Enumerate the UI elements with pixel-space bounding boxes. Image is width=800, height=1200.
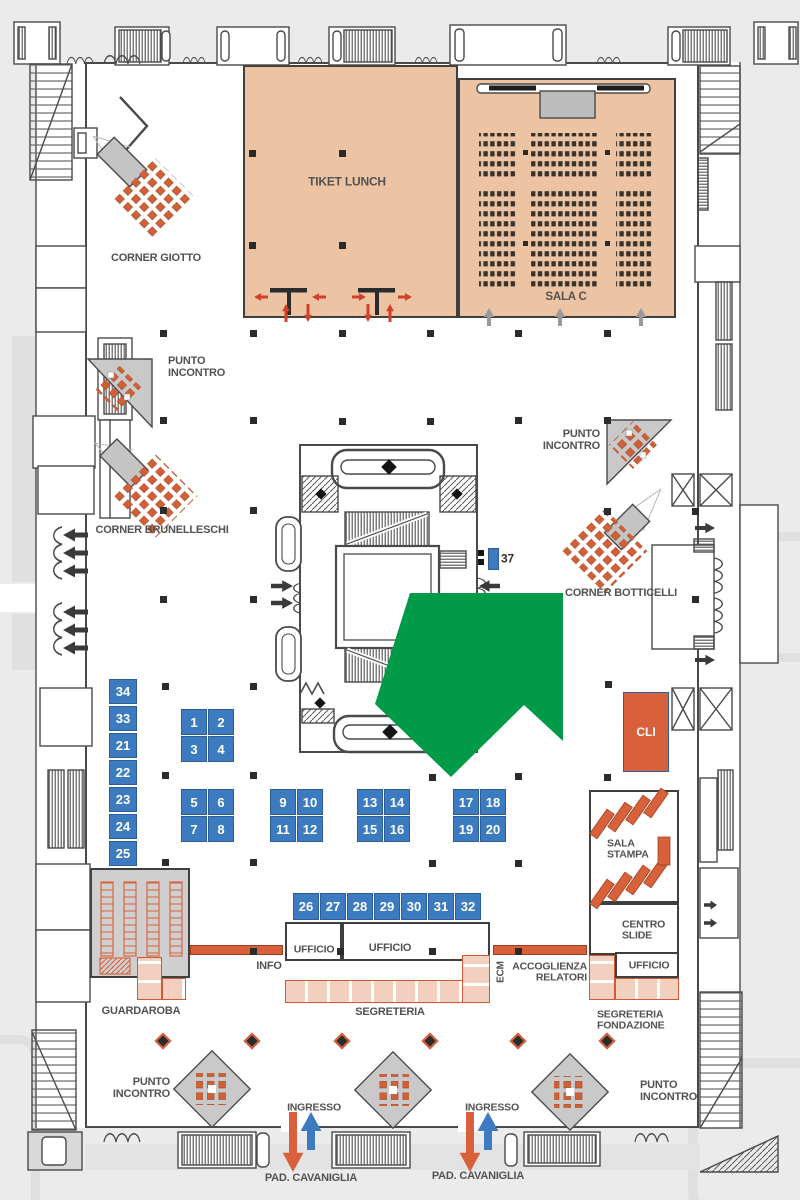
column: [429, 860, 436, 867]
label-punto-incontro-2: PUNTO INCONTRO: [543, 429, 600, 453]
booth-24[interactable]: 24: [109, 814, 137, 839]
label-ecm: ECM: [497, 961, 508, 983]
column: [339, 418, 346, 425]
booth-6[interactable]: 6: [208, 789, 234, 815]
label-punto-incontro-3: PUNTO INCONTRO: [113, 1077, 170, 1101]
booth-9[interactable]: 9: [270, 789, 296, 815]
booth-11[interactable]: 11: [270, 816, 296, 842]
booth-17[interactable]: 17: [453, 789, 479, 815]
booth-2[interactable]: 2: [208, 709, 234, 735]
column: [250, 859, 257, 866]
label-ufficio-small: UFFICIO: [294, 944, 335, 955]
booth-29[interactable]: 29: [374, 893, 400, 920]
label-segreteria-fondazione: SEGRETERIA FONDAZIONE: [597, 1010, 664, 1033]
column: [250, 683, 257, 690]
counter-ecm-desk: [493, 945, 587, 955]
column: [160, 507, 167, 514]
column: [429, 774, 436, 781]
column: [339, 330, 346, 337]
tower-top-right: [754, 22, 798, 64]
booth-13[interactable]: 13: [357, 789, 383, 815]
room-tiket-lunch: [243, 65, 458, 318]
column: [250, 772, 257, 779]
booth-34[interactable]: 34: [109, 679, 137, 704]
label-corner-giotto: CORNER GIOTTO: [111, 253, 201, 265]
label-pad-cavaniglia-1: PAD. CAVANIGLIA: [265, 1173, 357, 1185]
column: [604, 417, 611, 424]
counter-fondazione-side: [589, 955, 615, 1000]
booth-7[interactable]: 7: [181, 816, 207, 842]
column: [604, 508, 611, 515]
column: [427, 330, 434, 337]
column: [692, 508, 699, 515]
booth-23[interactable]: 23: [109, 787, 137, 812]
column: [250, 507, 257, 514]
column: [515, 860, 522, 867]
column: [604, 774, 611, 781]
column: [337, 948, 344, 955]
label-punto-incontro-1: PUNTO INCONTRO: [168, 356, 225, 380]
booth-19[interactable]: 19: [453, 816, 479, 842]
column: [605, 681, 612, 688]
booth-20[interactable]: 20: [480, 816, 506, 842]
column: [515, 330, 522, 337]
booth-33[interactable]: 33: [109, 706, 137, 731]
column: [162, 859, 169, 866]
counter-guardaroba-b: [162, 978, 186, 1000]
column: [249, 150, 256, 157]
booth-30[interactable]: 30: [401, 893, 427, 920]
booth-1[interactable]: 1: [181, 709, 207, 735]
label-ufficio-right: UFFICIO: [629, 960, 670, 971]
left-exit-gap: [0, 584, 52, 612]
road-right: [752, 532, 800, 662]
label-ingresso-2: INGRESSO: [465, 1102, 519, 1113]
column: [162, 683, 169, 690]
booth-37[interactable]: [488, 548, 499, 570]
arrow-room-right-2: [704, 919, 717, 928]
room-sala-c: [458, 78, 676, 318]
label-tiket-lunch: TIKET LUNCH: [308, 176, 386, 189]
column: [160, 330, 167, 337]
booth-26[interactable]: 26: [293, 893, 319, 920]
booth-14[interactable]: 14: [384, 789, 410, 815]
stairs-top-left: [30, 64, 72, 180]
label-sala-stampa: SALA STAMPA: [607, 839, 649, 862]
label-segreteria: SEGRETERIA: [355, 1007, 425, 1019]
counter-accoglienza: [462, 955, 490, 1003]
booth-5[interactable]: 5: [181, 789, 207, 815]
column: [249, 242, 256, 249]
booth-CLI[interactable]: CLI: [623, 692, 669, 772]
arrow-room-right-1: [704, 901, 717, 910]
column: [515, 417, 522, 424]
column: [427, 418, 434, 425]
left-outer-band-2: [12, 614, 42, 670]
booth-31[interactable]: 31: [428, 893, 454, 920]
column: [604, 330, 611, 337]
sidewalk-bottom: [85, 1144, 700, 1170]
column: [429, 948, 436, 955]
vent-grilles-top: [115, 25, 730, 65]
road-bottom-right: [688, 1058, 800, 1200]
column: [160, 417, 167, 424]
label-ufficio-large: UFFICIO: [369, 943, 412, 955]
booth-32[interactable]: 32: [455, 893, 481, 920]
left-outer-band-1: [12, 336, 42, 582]
booth-22[interactable]: 22: [109, 760, 137, 785]
counter-guardaroba-a: [137, 957, 162, 1000]
label-ingresso-1: INGRESSO: [287, 1102, 341, 1113]
counter-info-desk: [190, 945, 283, 955]
column: [162, 772, 169, 779]
column: [250, 596, 257, 603]
booth-21[interactable]: 21: [109, 733, 137, 758]
column: [339, 150, 346, 157]
column: [250, 417, 257, 424]
booth-18[interactable]: 18: [480, 789, 506, 815]
label-accoglienza-relatori: ACCOGLIENZA RELATORI: [512, 962, 587, 985]
booth-4[interactable]: 4: [208, 736, 234, 762]
label-sala-c: SALA C: [545, 291, 586, 303]
booth-16[interactable]: 16: [384, 816, 410, 842]
label-info: INFO: [256, 961, 281, 973]
tower-top-left: [14, 22, 60, 64]
column: [250, 330, 257, 337]
column: [692, 596, 699, 603]
column: [160, 596, 167, 603]
booth-25[interactable]: 25: [109, 841, 137, 866]
booth-3[interactable]: 3: [181, 736, 207, 762]
label-pad-cavaniglia-2: PAD. CAVANIGLIA: [432, 1171, 524, 1183]
column: [515, 773, 522, 780]
label-booth-37-number: 37: [501, 553, 514, 566]
stairs-top-right: [700, 66, 740, 154]
venue-floorplan: 1234567891011121314151617181920343321222…: [0, 0, 800, 1200]
label-centro-slide: CENTRO SLIDE: [622, 920, 665, 943]
booth-15[interactable]: 15: [357, 816, 383, 842]
booth-10[interactable]: 10: [297, 789, 323, 815]
label-punto-incontro-4: PUNTO INCONTRO: [640, 1080, 697, 1104]
label-corner-brunelleschi: CORNER BRUNELLESCHI: [95, 525, 228, 537]
counter-segreteria-fondazione: [615, 978, 679, 1000]
booth-28[interactable]: 28: [347, 893, 373, 920]
booth-27[interactable]: 27: [320, 893, 346, 920]
column: [250, 948, 257, 955]
counter-segreteria: [285, 980, 490, 1003]
booth-12[interactable]: 12: [297, 816, 323, 842]
column: [339, 242, 346, 249]
label-corner-botticelli: CORNER BOTTICELLI: [565, 588, 677, 600]
label-guardaroba: GUARDAROBA: [102, 1006, 181, 1018]
column: [515, 948, 522, 955]
road-bottom-left: [0, 1035, 40, 1200]
booth-8[interactable]: 8: [208, 816, 234, 842]
